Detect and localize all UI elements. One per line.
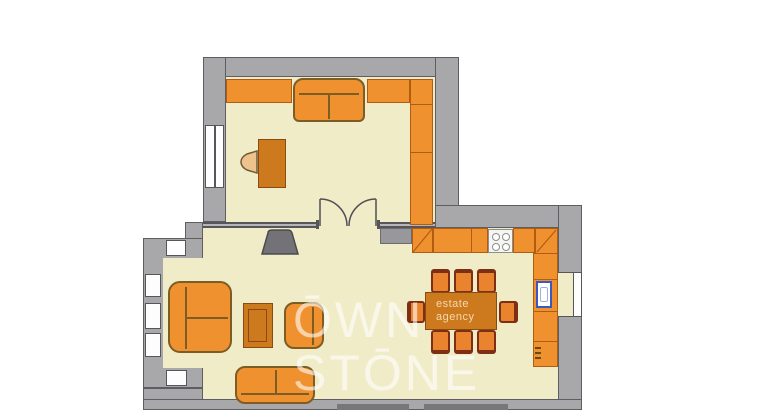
bottom-window-segment-1 [337,404,409,410]
living-sofa-left [168,281,232,353]
bottom-window-segment-2 [424,404,508,410]
table-watermark-line2: agency [436,311,496,324]
dining-chair [477,269,496,293]
wall-top [203,57,459,77]
sink [536,281,552,308]
studio-wardrobe [410,79,433,225]
bottom-sofa-back-line [241,393,309,395]
stove-burner-icon [502,243,510,251]
dining-chair [431,330,450,354]
counter-right-segment-3 [534,341,557,342]
stove [488,229,513,253]
desk [258,139,286,188]
bay-window-left-3 [145,333,161,357]
counter-top-run [433,228,488,253]
dining-chair [407,301,425,323]
armchair [284,302,324,349]
right-window-glass [573,272,582,317]
dining-chair [499,301,518,323]
armchair-back-line [312,307,314,345]
studio-window [205,125,224,188]
counter-right-run [533,253,558,367]
studio-cabinet-right [367,79,410,103]
left-sofa-cushion-split [187,317,228,319]
counter-corner-left [412,228,433,253]
studio-sofa [293,78,365,122]
partition-wall-left-segment [203,222,318,228]
bottom-sofa-cushion-split [275,370,277,393]
wardrobe-segment-line-2 [411,152,432,153]
counter-right-segment-1 [534,279,557,280]
dining-chair [454,269,473,293]
sink-basin [540,287,548,302]
dining-chair [477,330,496,354]
drawer-tick [535,357,541,359]
dining-table: estate agency [425,292,497,330]
bay-window-top [166,240,186,256]
wardrobe-segment-line-1 [411,104,432,105]
table-watermark-line1: estate [436,298,496,311]
kitchen-appliance [380,228,412,244]
studio-window-mullion [214,126,216,187]
studio-cabinet-left [226,79,292,103]
coffee-table-inner [248,309,267,342]
dining-chair [454,330,473,354]
floor-plan: estate agency ŌWN STŌNE [0,0,779,410]
wall-studio-right [435,57,459,207]
drawer-tick [535,347,541,349]
counter-right-segment-2 [534,311,557,312]
living-sofa-bottom [235,366,315,404]
studio-sofa-cushion-split [328,94,330,119]
coffee-table [243,303,273,348]
counter-top-run-right [513,228,535,253]
bay-window-left-2 [145,303,161,329]
door-opening-floor [318,222,378,228]
drawer-tick [535,352,541,354]
stove-burner-icon [492,233,500,241]
bay-window-left-1 [145,274,161,297]
table-watermark: estate agency [426,293,496,324]
door-jamb-left [316,220,319,229]
bay-window-bottom [166,370,187,386]
stove-burner-icon [492,243,500,251]
stove-burner-icon [502,233,510,241]
counter-segment-line [471,229,472,252]
dining-chair [431,269,450,293]
